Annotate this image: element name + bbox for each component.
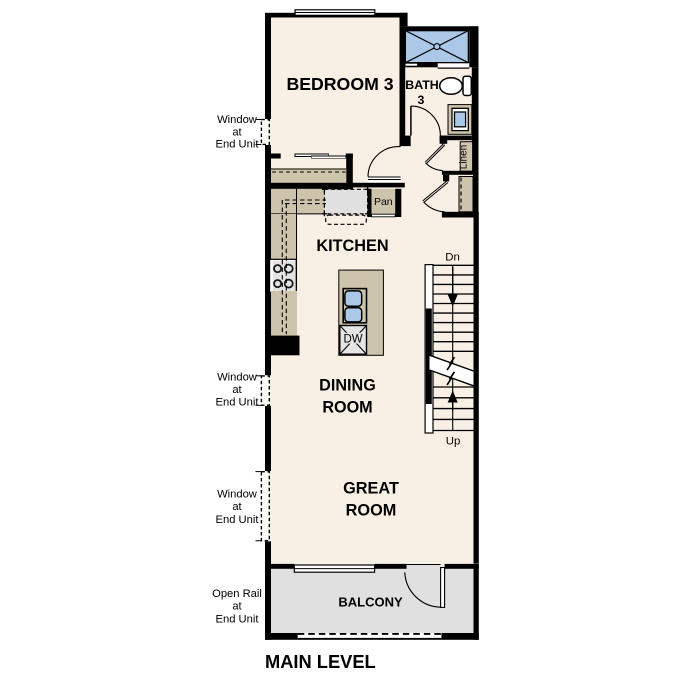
svg-text:at: at	[232, 126, 242, 138]
svg-text:KITCHEN: KITCHEN	[316, 237, 388, 255]
svg-text:ROOM: ROOM	[322, 399, 372, 417]
svg-text:DW: DW	[344, 334, 363, 346]
svg-text:3: 3	[418, 93, 425, 107]
svg-text:Window: Window	[217, 489, 258, 501]
svg-text:at: at	[232, 501, 242, 513]
svg-text:End Unit: End Unit	[216, 139, 260, 151]
svg-text:ROOM: ROOM	[346, 502, 397, 520]
svg-text:BALCONY: BALCONY	[338, 595, 403, 610]
svg-text:End Unit: End Unit	[216, 613, 260, 625]
svg-text:DINING: DINING	[319, 377, 376, 395]
svg-text:BEDROOM 3: BEDROOM 3	[286, 74, 393, 94]
svg-text:Window: Window	[217, 114, 258, 126]
svg-text:Open Rail: Open Rail	[212, 588, 262, 600]
svg-text:GREAT: GREAT	[343, 480, 399, 498]
svg-text:MAIN LEVEL: MAIN LEVEL	[265, 651, 376, 672]
svg-text:at: at	[232, 601, 242, 613]
svg-text:Dn: Dn	[445, 252, 460, 264]
svg-text:End Unit: End Unit	[216, 397, 260, 409]
svg-text:at: at	[232, 384, 242, 396]
svg-text:End Unit: End Unit	[216, 514, 260, 526]
svg-text:Pan: Pan	[374, 196, 393, 208]
svg-text:Linen: Linen	[459, 145, 470, 169]
svg-text:Up: Up	[446, 436, 461, 448]
svg-text:BATH: BATH	[405, 78, 439, 92]
svg-text:Window: Window	[217, 372, 258, 384]
